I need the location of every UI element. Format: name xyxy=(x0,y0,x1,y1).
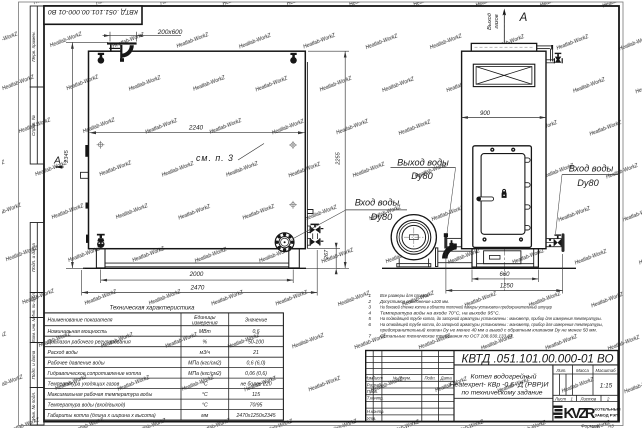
svg-text:Гидравлическое сопротивление к: Гидравлическое сопротивление котла xyxy=(48,371,142,377)
svg-text:Выход воды: Выход воды xyxy=(397,158,449,168)
svg-text:2: 2 xyxy=(367,299,371,305)
svg-text:Пров.: Пров. xyxy=(367,389,378,394)
svg-text:Техническая характеристика: Техническая характеристика xyxy=(110,306,196,312)
svg-text:Dy80: Dy80 xyxy=(371,212,393,222)
svg-text:Подп. и дата: Подп. и дата xyxy=(31,350,36,379)
svg-text:Температура уходящих газов: Температура уходящих газов xyxy=(48,381,120,387)
svg-text:МВт: МВт xyxy=(199,329,211,335)
svg-text:Номинальная мощность: Номинальная мощность xyxy=(48,329,108,335)
svg-text:2255: 2255 xyxy=(335,151,341,165)
svg-text:Листов: Листов xyxy=(580,396,597,401)
svg-text:Взам. инв. №: Взам. инв. № xyxy=(31,317,36,343)
svg-text:0,6: 0,6 xyxy=(252,329,259,335)
svg-text:КВТД .051.101.00.000-01 В0: КВТД .051.101.00.000-01 В0 xyxy=(48,8,138,15)
svg-text:Инв. № подл.: Инв. № подл. xyxy=(31,392,36,421)
svg-text:Все размеры для справок: Все размеры для справок xyxy=(380,293,430,299)
svg-text:°С: °С xyxy=(202,381,208,387)
svg-text:21: 21 xyxy=(252,350,259,356)
svg-text:Остальные технические требован: Остальные технические требования по ОСТ … xyxy=(380,333,514,339)
svg-text:Вход воды: Вход воды xyxy=(569,163,614,173)
svg-text:4: 4 xyxy=(368,310,371,316)
svg-text:Т.контр.: Т.контр. xyxy=(367,396,384,401)
svg-text:Лит.: Лит. xyxy=(555,368,566,373)
svg-text:Перв. примен.: Перв. примен. xyxy=(31,31,36,62)
svg-text:№ докум.: № докум. xyxy=(393,376,411,381)
svg-text:2345: 2345 xyxy=(64,149,70,163)
svg-text:по техническому задание: по техническому задание xyxy=(462,390,544,397)
svg-text:Значение: Значение xyxy=(245,318,268,324)
svg-text:м3/ч: м3/ч xyxy=(200,350,211,356)
svg-text:Температура воды (вход/выход): Температура воды (вход/выход) xyxy=(48,402,126,408)
svg-text:Разраб.: Разраб. xyxy=(367,382,382,387)
svg-text:газов: газов xyxy=(494,14,500,28)
svg-text:На отводящей трубе котла, до з: На отводящей трубе котла, до запорной ар… xyxy=(380,321,603,328)
svg-text:см. п. 3: см. п. 3 xyxy=(196,153,234,163)
svg-text:Расход воды: Расход воды xyxy=(48,350,78,356)
svg-text:КОТЕЛЬНЫЙ: КОТЕЛЬНЫЙ xyxy=(595,407,621,412)
svg-text:На подводящей трубе котла, до: На подводящей трубе котла, до запорной а… xyxy=(380,315,602,322)
svg-text:0,6 (6,0): 0,6 (6,0) xyxy=(247,360,266,366)
svg-text:измерения: измерения xyxy=(192,320,218,326)
svg-text:660: 660 xyxy=(499,272,510,278)
svg-text:МПа (кгс/см2): МПа (кгс/см2) xyxy=(188,360,222,366)
svg-text:МПа (кгс/см2): МПа (кгс/см2) xyxy=(188,371,222,377)
svg-text:1:15: 1:15 xyxy=(600,382,613,389)
svg-text:Габариты котла (длина х ширина: Габариты котла (длина х ширина х высота) xyxy=(48,413,156,419)
svg-text:2000: 2000 xyxy=(189,271,204,278)
svg-text:Масса: Масса xyxy=(576,368,589,373)
svg-text:Подп. и дата: Подп. и дата xyxy=(31,243,36,272)
svg-text:Инв. № дубл.: Инв. № дубл. xyxy=(31,292,36,318)
svg-text:%: % xyxy=(203,340,208,346)
svg-text:Вход воды: Вход воды xyxy=(355,197,400,207)
svg-text:Dy80: Dy80 xyxy=(411,171,433,181)
svg-text:2470: 2470 xyxy=(190,285,205,292)
svg-text:1: 1 xyxy=(368,293,371,299)
svg-text:Справ. №: Справ. № xyxy=(31,115,36,136)
svg-text:А3: А3 xyxy=(607,423,614,428)
svg-text:А: А xyxy=(519,12,528,24)
svg-text:Дата: Дата xyxy=(440,376,453,381)
svg-text:не более 220: не более 220 xyxy=(240,381,271,387)
svg-text:0,06 (0,6): 0,06 (0,6) xyxy=(245,371,267,377)
svg-text:Максимальная рабочая температу: Максимальная рабочая температура воды xyxy=(48,392,153,398)
svg-text:2240: 2240 xyxy=(188,124,204,131)
svg-text:2470х1250х2345: 2470х1250х2345 xyxy=(235,413,275,419)
svg-text:Температура воды на входе 70°: Температура воды на входе 70°С, на выход… xyxy=(380,310,500,316)
svg-text:Наименование показателя: Наименование показателя xyxy=(48,318,113,324)
svg-text:5: 5 xyxy=(368,316,371,322)
svg-text:мм: мм xyxy=(201,413,208,419)
svg-text:6: 6 xyxy=(368,322,371,328)
svg-text:На боковой стенке котла в обла: На боковой стенке котла в области топочн… xyxy=(380,304,552,311)
svg-text:Масштаб: Масштаб xyxy=(595,368,616,373)
svg-text:КВТД .051.101.00.000-01 ВО: КВТД .051.101.00.000-01 ВО xyxy=(462,351,614,365)
svg-text:Допустимое отклонение ±100 мм: Допустимое отклонение ±100 мм. xyxy=(379,299,449,305)
svg-text:Dy80: Dy80 xyxy=(577,178,599,188)
svg-text:Рабочее давление воды: Рабочее давление воды xyxy=(48,360,105,366)
svg-text:50-100: 50-100 xyxy=(248,340,264,346)
svg-text:KVZR: KVZR xyxy=(564,406,596,422)
svg-text:А: А xyxy=(53,156,61,167)
svg-text:Котел водогрейный: Котел водогрейный xyxy=(471,374,538,381)
svg-text:Лист: Лист xyxy=(554,396,566,401)
svg-text:3: 3 xyxy=(368,305,371,311)
svg-text:Подп.: Подп. xyxy=(425,376,436,381)
svg-text:115: 115 xyxy=(252,392,260,398)
svg-text:7: 7 xyxy=(368,333,371,339)
svg-text:Утв.: Утв. xyxy=(367,416,377,421)
svg-text:200х600: 200х600 xyxy=(157,29,183,36)
svg-text:70/95: 70/95 xyxy=(250,402,263,408)
svg-text:°С: °С xyxy=(202,402,208,408)
svg-text:1250: 1250 xyxy=(500,284,514,290)
svg-text:Лист: Лист xyxy=(371,376,383,381)
svg-text:Н.контр.: Н.контр. xyxy=(367,409,385,414)
svg-text:900: 900 xyxy=(480,111,491,117)
svg-text:°С: °С xyxy=(202,392,208,398)
svg-text:267: 267 xyxy=(324,249,330,260)
svg-text:ЗАВОД РЭП: ЗАВОД РЭП xyxy=(595,412,619,417)
svg-text:Диапазон рабочего регулировани: Диапазон рабочего регулирования xyxy=(47,340,131,346)
svg-text:предохранительный клапан Dy н: предохранительный клапан Dy не менее 40 … xyxy=(380,327,597,334)
svg-text:Формат: Формат xyxy=(581,423,599,428)
svg-text:Выход: Выход xyxy=(487,13,493,30)
svg-text:Heatexpert- КВр -0,6- Д (РВР)И: Heatexpert- КВр -0,6- Д (РВР)И xyxy=(450,382,550,389)
